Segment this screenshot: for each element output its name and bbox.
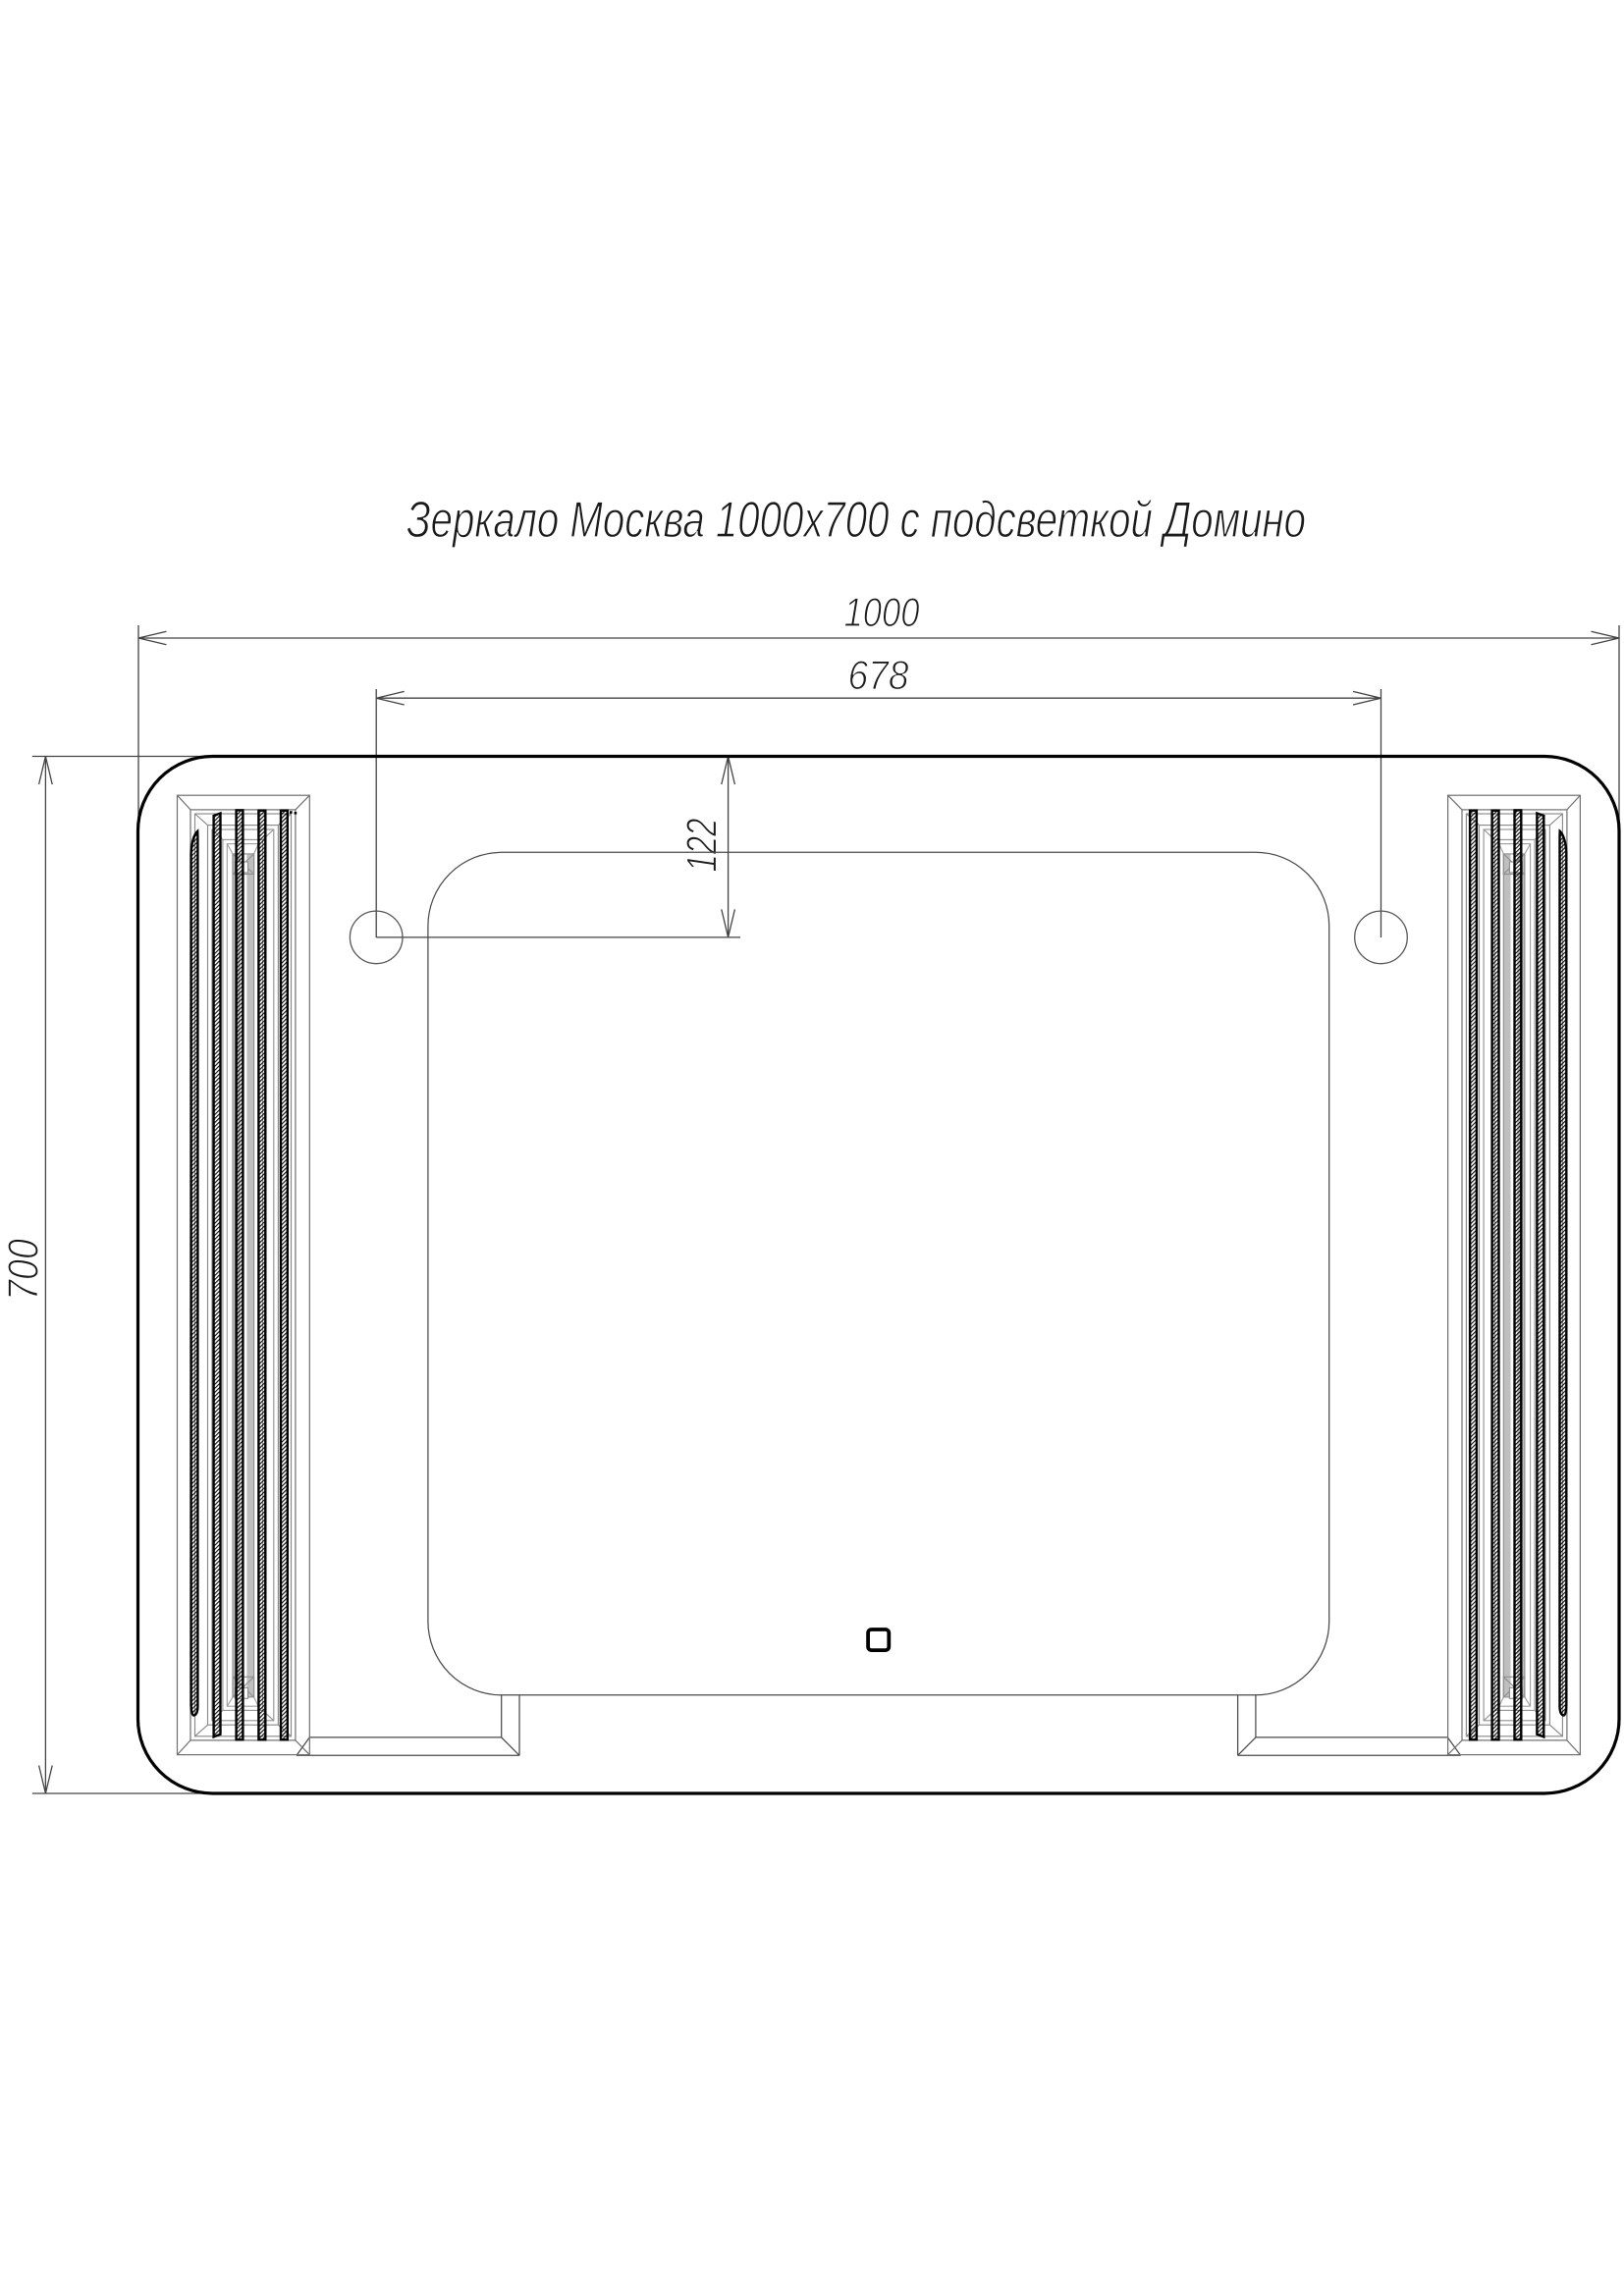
svg-text:122: 122	[678, 819, 727, 873]
svg-text:678: 678	[848, 652, 910, 698]
svg-text:700: 700	[0, 1239, 48, 1301]
svg-text:Зеркало Москва 1000х700 с подс: Зеркало Москва 1000х700 с подсветкой Дом…	[406, 492, 1306, 549]
svg-text:1000: 1000	[844, 589, 921, 635]
